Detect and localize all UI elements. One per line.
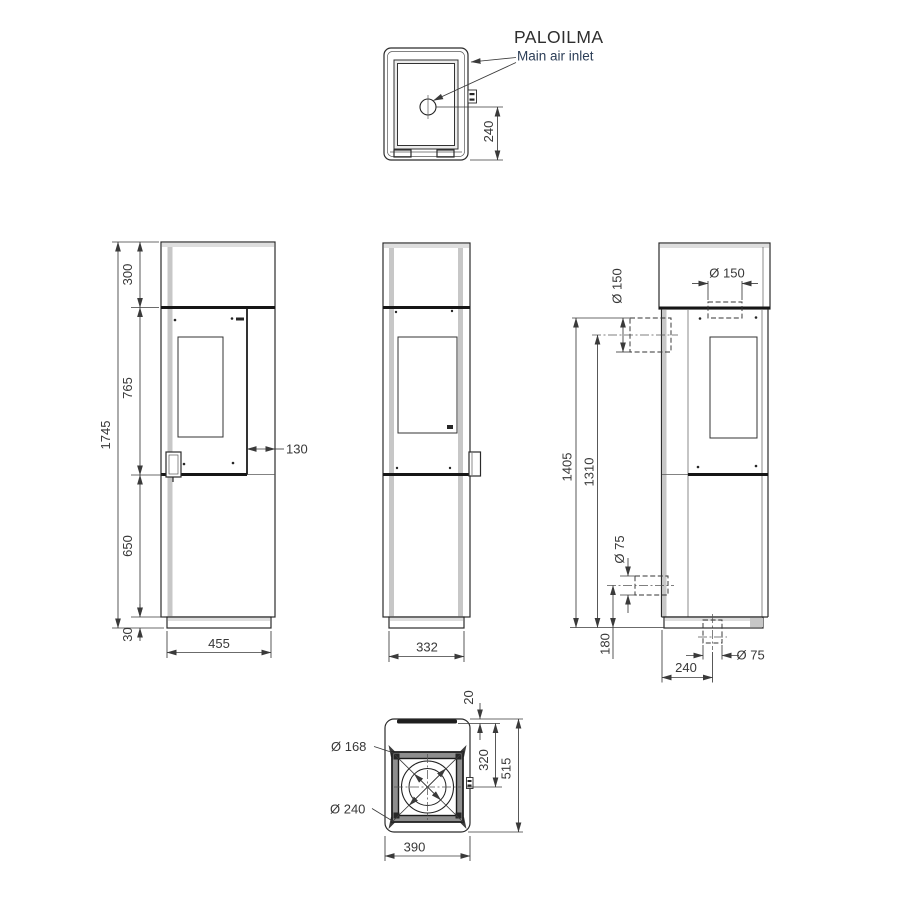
front-view: 1745 300 765 650 30 455 130 [98, 242, 308, 658]
label-paloilma: PALOILMA [514, 27, 603, 47]
side-view: 332 [383, 243, 481, 662]
dim-label-bottom-inlet: Ø 75 [737, 648, 765, 663]
dim-flue-top-150: Ø 150 [692, 266, 758, 301]
top-latch [468, 90, 477, 103]
dim-label-180: 180 [598, 633, 613, 655]
dim-label-30: 30 [120, 627, 135, 641]
drawing-svg: 240 PALOILMA Main air inlet [0, 0, 900, 900]
back-window [710, 337, 757, 438]
top-view: 240 PALOILMA Main air inlet [384, 27, 603, 160]
top-foot-right [437, 150, 454, 157]
dim-bottom-right: 20 320 515 [458, 690, 523, 832]
dim-label-flue-rear: Ø 150 [610, 268, 625, 303]
dim-side-332: 332 [389, 631, 464, 662]
dim-d240: Ø 240 [330, 802, 393, 822]
stove-technical-drawing: 240 PALOILMA Main air inlet [0, 0, 900, 900]
bottom-slot [397, 720, 457, 724]
leader-paloilma [471, 58, 516, 63]
top-foot-left [394, 150, 411, 157]
label-main-air-inlet: Main air inlet [517, 49, 594, 64]
dim-180: 180 [598, 586, 614, 660]
dim-label-765: 765 [120, 377, 135, 399]
dim-label-1405: 1405 [560, 453, 575, 482]
dim-label-240-back: 240 [675, 660, 697, 675]
dim-label-flue-top: Ø 150 [709, 266, 744, 281]
dim-label-130: 130 [286, 442, 308, 457]
dim-rear-inlet-75: Ø 75 [612, 535, 637, 613]
dim-label-1745: 1745 [98, 421, 113, 450]
door-handle [166, 452, 181, 477]
paloilma-callout: PALOILMA Main air inlet [434, 27, 604, 101]
dim-label-300: 300 [120, 264, 135, 286]
dim-flue-rear-150: Ø 150 [610, 268, 631, 352]
dim-label-650: 650 [120, 535, 135, 557]
bottom-view: Ø 168 Ø 240 20 320 515 390 [330, 690, 523, 861]
side-window [398, 337, 457, 433]
side-handle [469, 452, 481, 476]
dim-1405-1310: 1405 1310 [560, 318, 631, 628]
dim-label-320: 320 [476, 749, 491, 771]
dim-label-top-240: 240 [481, 121, 496, 143]
dim-240-back: 240 [662, 630, 713, 683]
dim-label-332: 332 [416, 640, 438, 655]
front-dimensions: 1745 300 765 650 30 455 130 [98, 242, 308, 658]
dim-label-455: 455 [208, 636, 230, 651]
logo-mark [447, 425, 453, 429]
dim-label-390: 390 [404, 840, 426, 855]
dim-label-d168: Ø 168 [331, 739, 366, 754]
dim-label-20: 20 [461, 690, 476, 704]
dim-label-rear-inlet: Ø 75 [612, 535, 627, 563]
dim-label-515: 515 [499, 758, 514, 780]
dim-390: 390 [385, 836, 470, 861]
dim-label-1310: 1310 [582, 458, 597, 487]
top-flue-outlet [708, 302, 742, 318]
dim-d168: Ø 168 [331, 739, 393, 754]
dim-bottom-inlet-75: Ø 75 [686, 645, 765, 663]
back-view: Ø 150 Ø 150 1405 1310 Ø 75 [560, 243, 771, 683]
dim-label-d240: Ø 240 [330, 802, 365, 817]
front-window [178, 337, 223, 437]
